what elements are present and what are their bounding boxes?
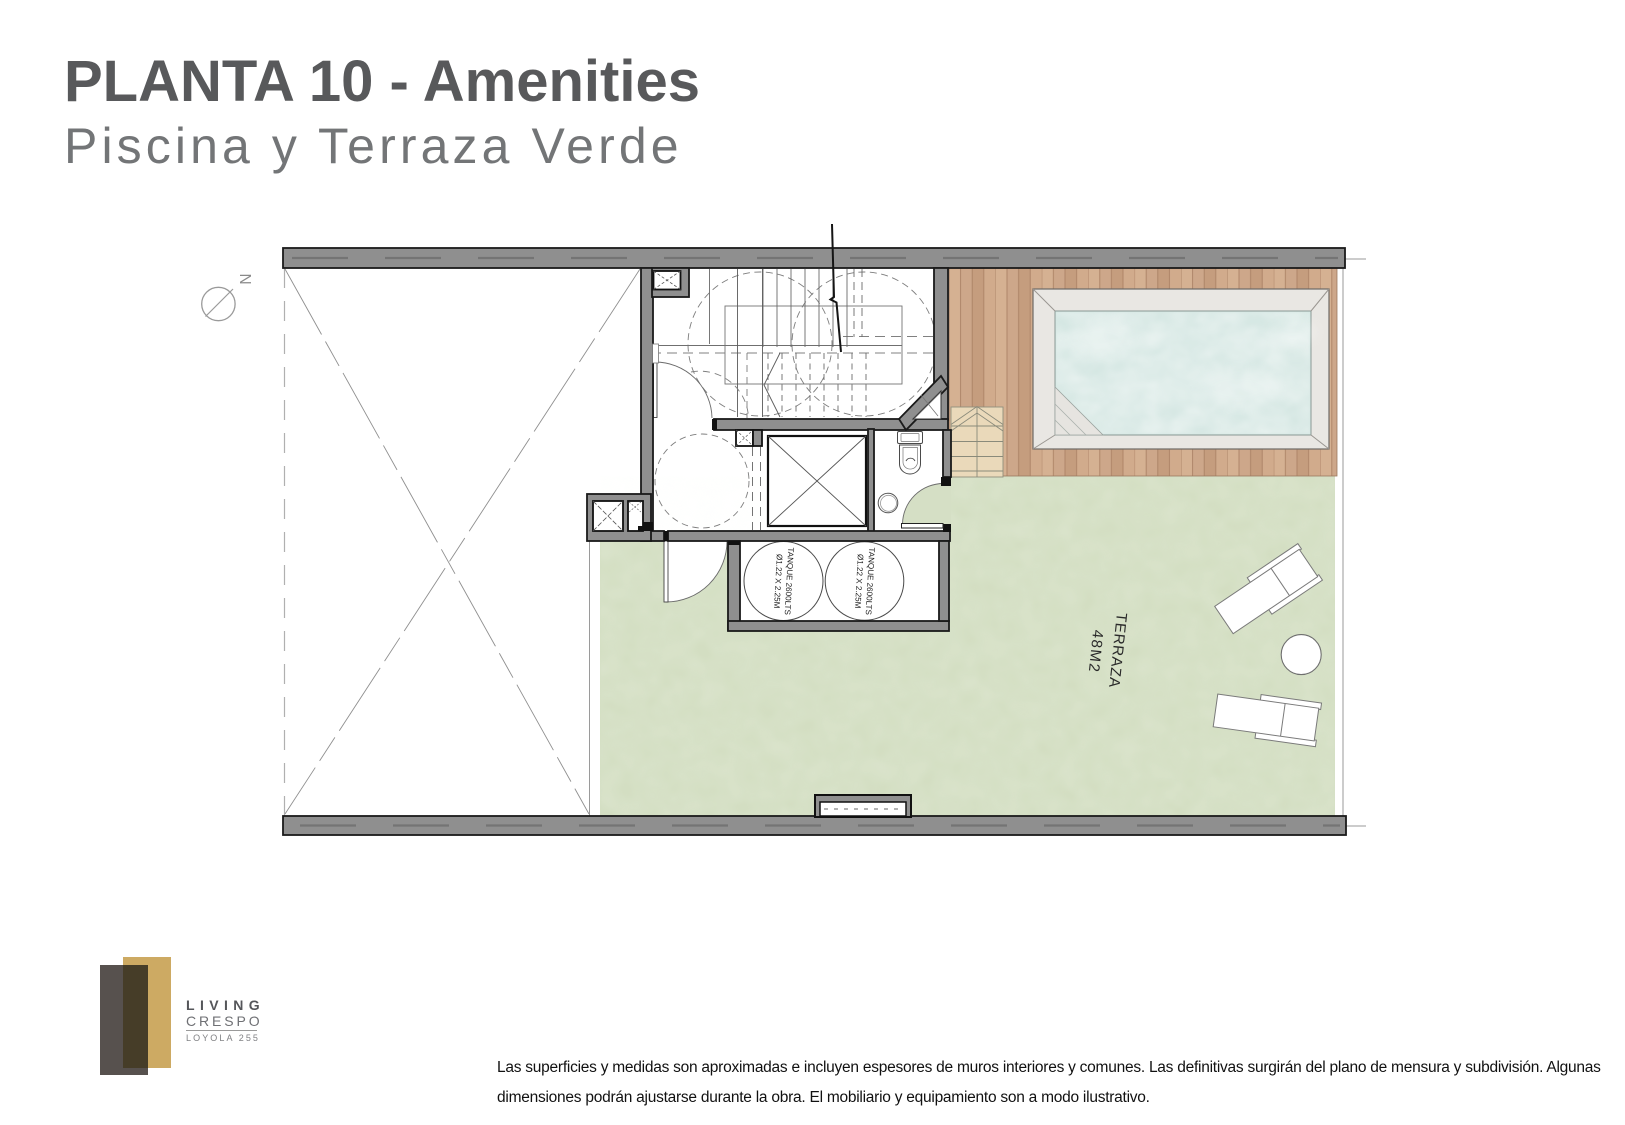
svg-text:N: N [236, 274, 253, 285]
